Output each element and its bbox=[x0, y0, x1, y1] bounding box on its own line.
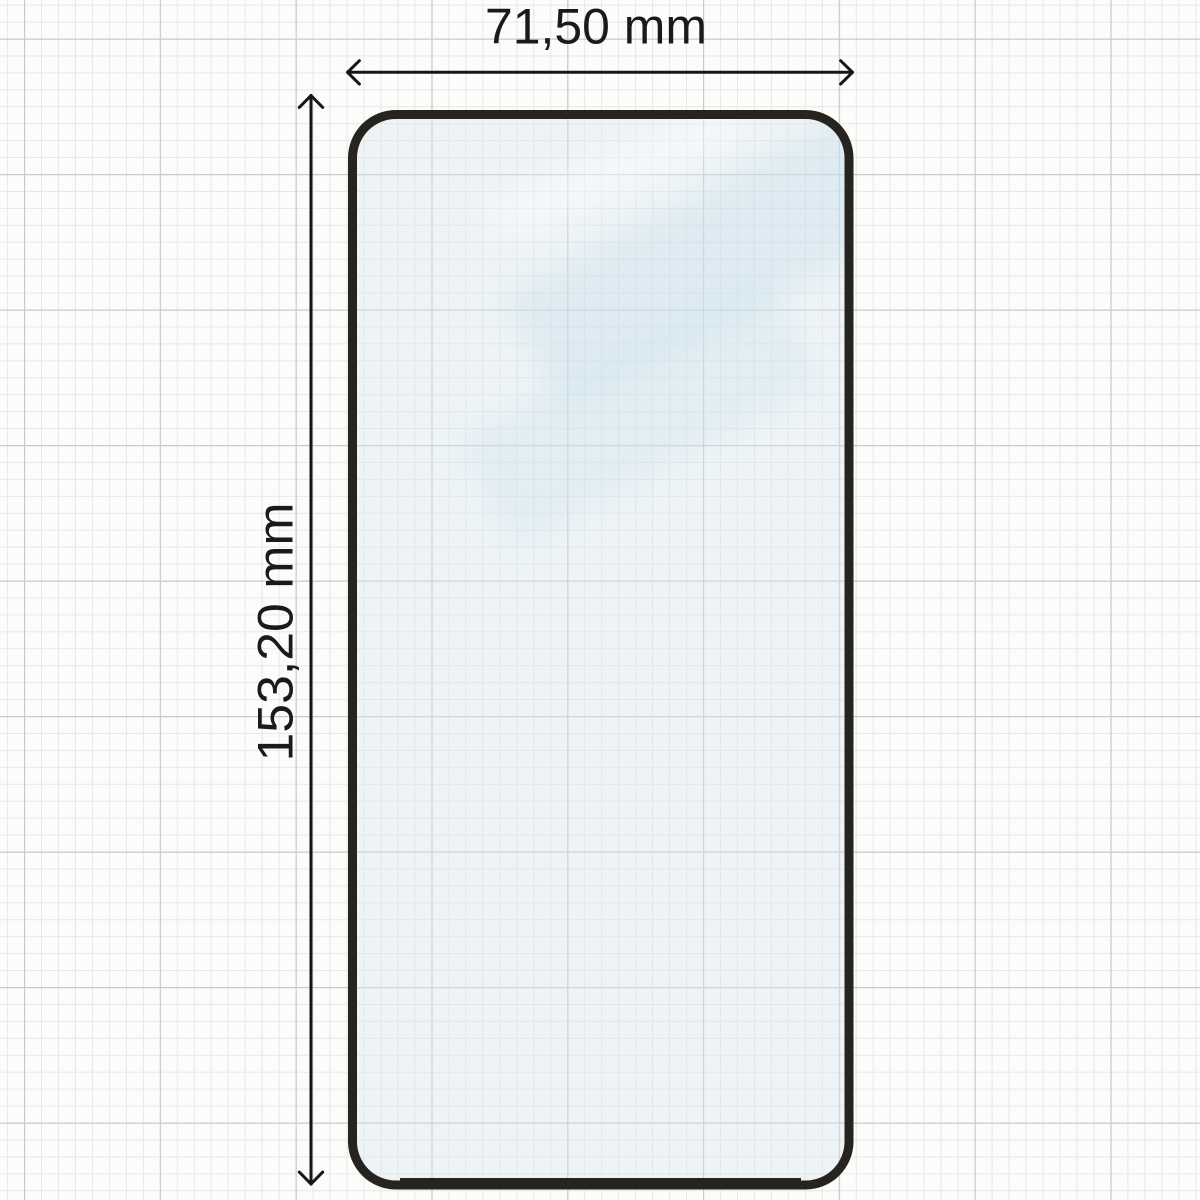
svg-text:153,20 mm: 153,20 mm bbox=[248, 503, 304, 762]
svg-text:71,50 mm: 71,50 mm bbox=[485, 0, 707, 55]
